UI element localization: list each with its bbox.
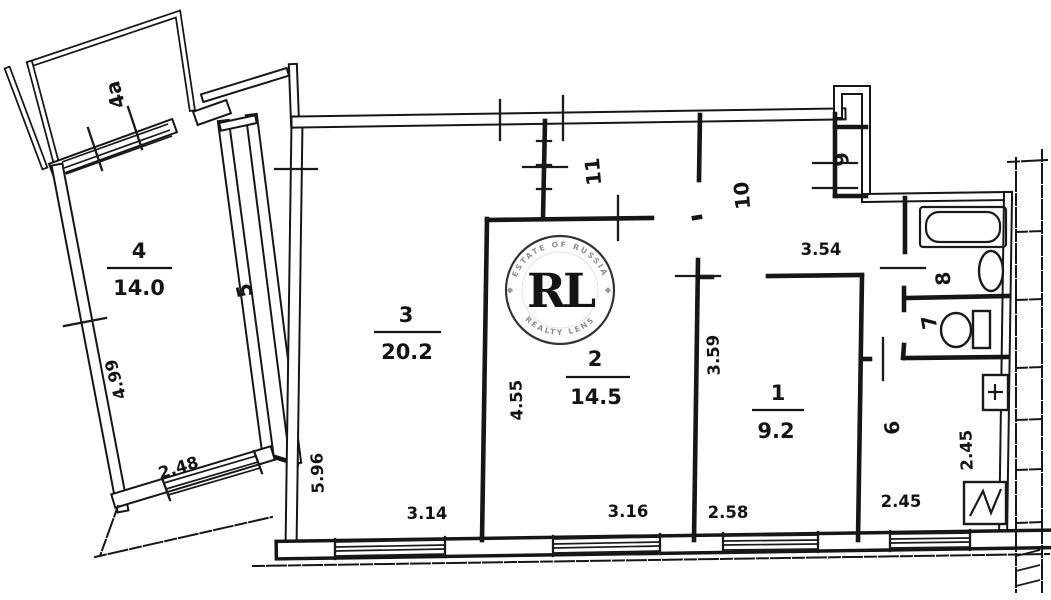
room-2-area: 14.5 [570,385,622,409]
room-10-number: 10 [729,181,755,211]
room-1 [703,280,858,535]
floor-plan-page: 4а 4 14.0 4.99 2.48 5 3 20.2 5.96 3.14 1… [0,0,1051,600]
room-11-number: 11 [580,157,606,187]
room-2-depth-dim: 4.55 [506,380,526,421]
room2-top-wall-stub [694,217,700,218]
shaft-strip [1008,150,1047,592]
room-3-area: 20.2 [381,340,433,364]
room-6-depth-dim: 2.45 [956,430,976,471]
room-8-number: 8 [930,271,955,287]
room-1-area: 9.2 [757,419,794,443]
annex-ground-stub [100,506,118,556]
room-3-depth-dim: 5.96 [307,453,327,494]
room-1-depth-dim: 3.59 [703,335,723,376]
room1-top-wall-right [768,275,862,276]
room-4-area: 14.0 [113,276,165,300]
room-2-width-dim: 3.16 [608,502,649,521]
room-8 [908,200,1005,294]
room-1-width-dim: 2.58 [708,503,749,522]
room2-top-wall [487,218,652,220]
room-3-number: 3 [399,303,414,327]
kitchen-top-wall [905,357,1008,358]
watermark-badge: ESTATE OF RUSSIA REALTY LENS RL [504,234,616,346]
room-6-number: 6 [879,419,905,436]
bath-wc-wall [905,296,1008,298]
room-11 [548,125,695,215]
room-2-number: 2 [588,347,603,371]
wardrobe-divider-wall [543,121,545,218]
room1-kitchen-wall [858,276,862,540]
room-1-number: 1 [771,381,786,405]
floor-plan-svg: 4а 4 14.0 4.99 2.48 5 3 20.2 5.96 3.14 1… [0,0,1051,600]
room-3-width-dim: 3.14 [407,504,448,523]
bath-left-wall-c [903,345,904,358]
room2-corridor-wall-upper [699,115,700,180]
annex-ground-line [95,517,272,557]
room-6-width-dim: 2.45 [881,492,922,511]
room-4-number: 4 [132,239,147,263]
room-10-length-dim: 3.54 [801,240,842,259]
watermark-initials: RL [527,264,596,319]
